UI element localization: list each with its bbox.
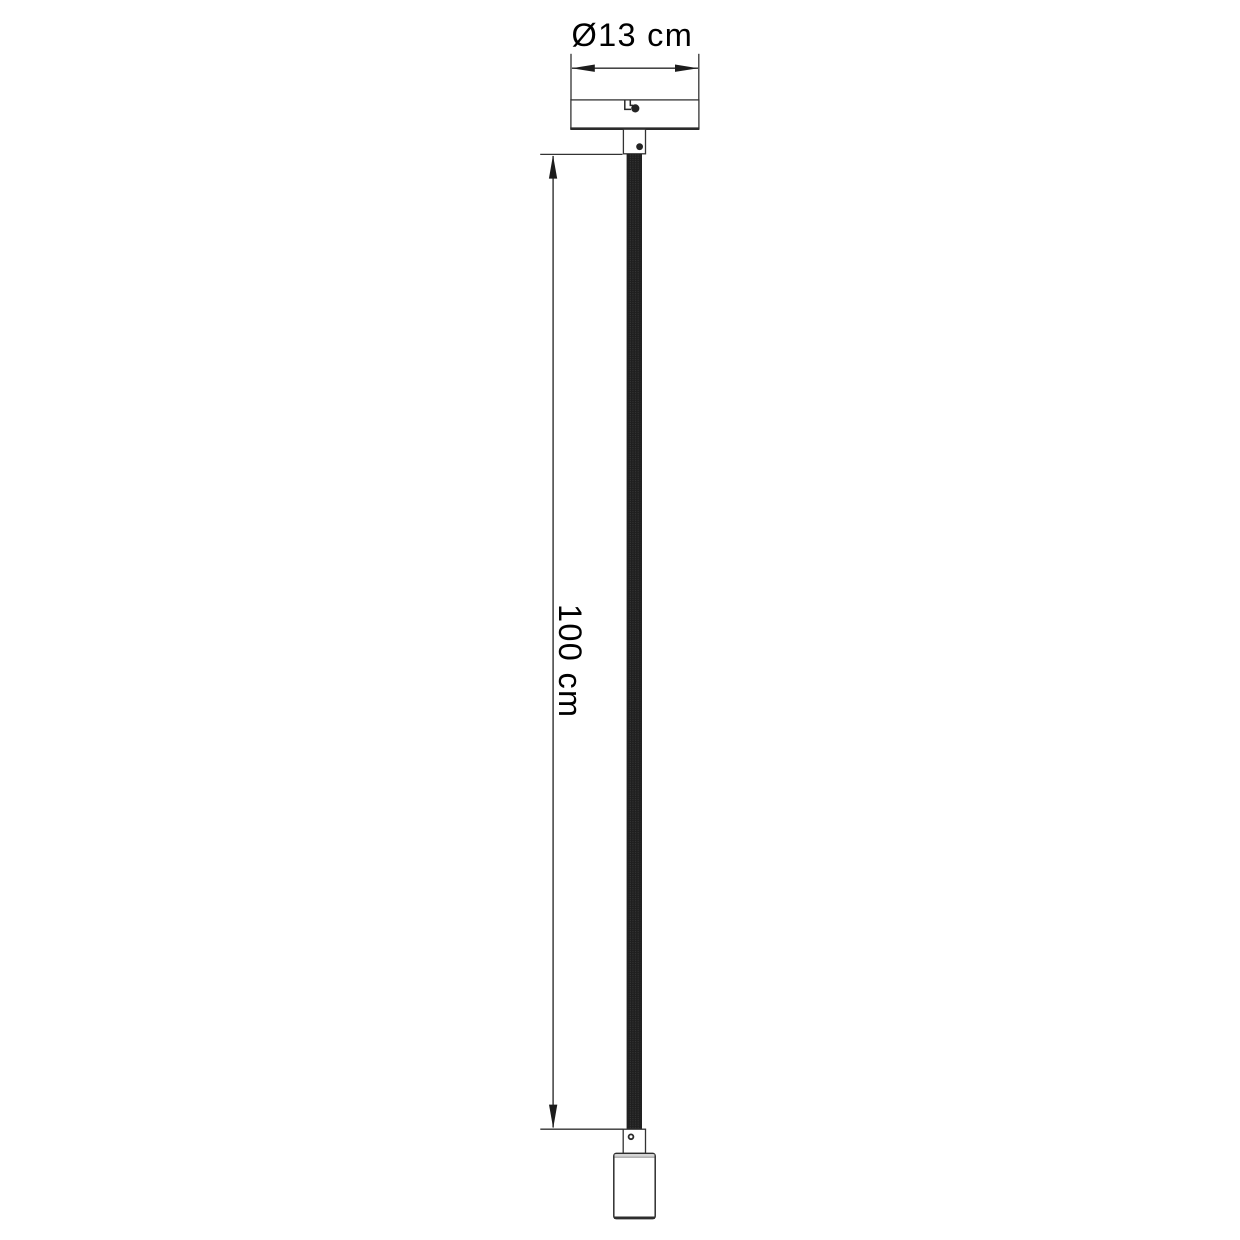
svg-text:Ø13 cm: Ø13 cm [572,17,694,53]
svg-text:100 cm: 100 cm [552,604,588,718]
